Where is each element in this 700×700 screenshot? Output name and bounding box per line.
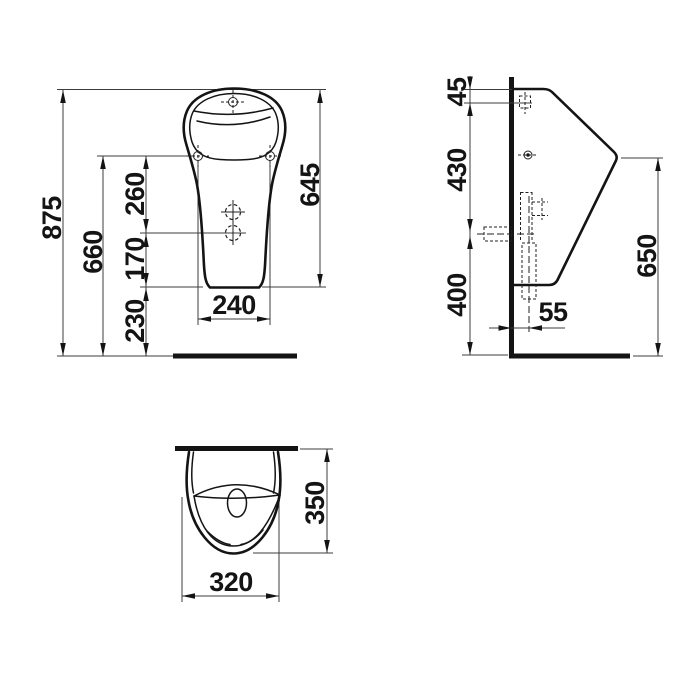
top-bowl-outline: [187, 452, 281, 554]
dim-fixing-height: 660: [78, 156, 108, 356]
dim-label-170: 170: [120, 237, 150, 281]
dim-label-645: 645: [295, 163, 325, 207]
drawing-sheet: 875 660 260 170 230 645: [0, 0, 700, 700]
dim-label-320: 320: [209, 567, 253, 597]
dim-label-650: 650: [632, 234, 662, 278]
side-body-outline: [513, 89, 617, 285]
dim-chain-front: 260 170 230: [120, 156, 150, 356]
dim-label-875: 875: [37, 196, 67, 240]
side-view: 45 430 400 650 55: [442, 76, 663, 358]
dim-label-230: 230: [120, 299, 150, 343]
dim-overall-height: 875: [37, 90, 67, 357]
dim-label-430: 430: [442, 148, 472, 192]
dim-label-45: 45: [442, 77, 472, 107]
dim-chain-side: 45 430 400: [442, 76, 473, 355]
front-rim-opening: [190, 94, 278, 161]
side-siphon-dashed: [521, 192, 549, 242]
front-view: 875 660 260 170 230 645: [37, 89, 326, 357]
top-view: 350 320: [175, 449, 333, 603]
dim-front-edge-height: 650: [632, 158, 662, 356]
top-drain-outlet: [228, 489, 247, 517]
dim-label-55: 55: [538, 297, 568, 327]
dim-depth: 350: [300, 449, 330, 553]
technical-drawing-canvas: 875 660 260 170 230 645: [0, 0, 700, 700]
side-outlet-horizontal: [477, 227, 534, 241]
dim-ceramic-height: 645: [295, 90, 325, 288]
dim-label-240: 240: [212, 290, 256, 320]
front-outlet-upper: [221, 200, 245, 224]
dim-label-400: 400: [442, 273, 472, 317]
side-outlet-vertical: [522, 196, 536, 332]
dim-outlet-offset: 55: [489, 297, 568, 331]
dim-width: 320: [182, 567, 279, 599]
dim-label-660: 660: [78, 230, 108, 274]
dim-label-350: 350: [300, 481, 330, 525]
dim-fixing-width: 240: [198, 290, 270, 322]
side-fixing-hole: [518, 151, 538, 159]
dim-label-260: 260: [120, 172, 150, 216]
